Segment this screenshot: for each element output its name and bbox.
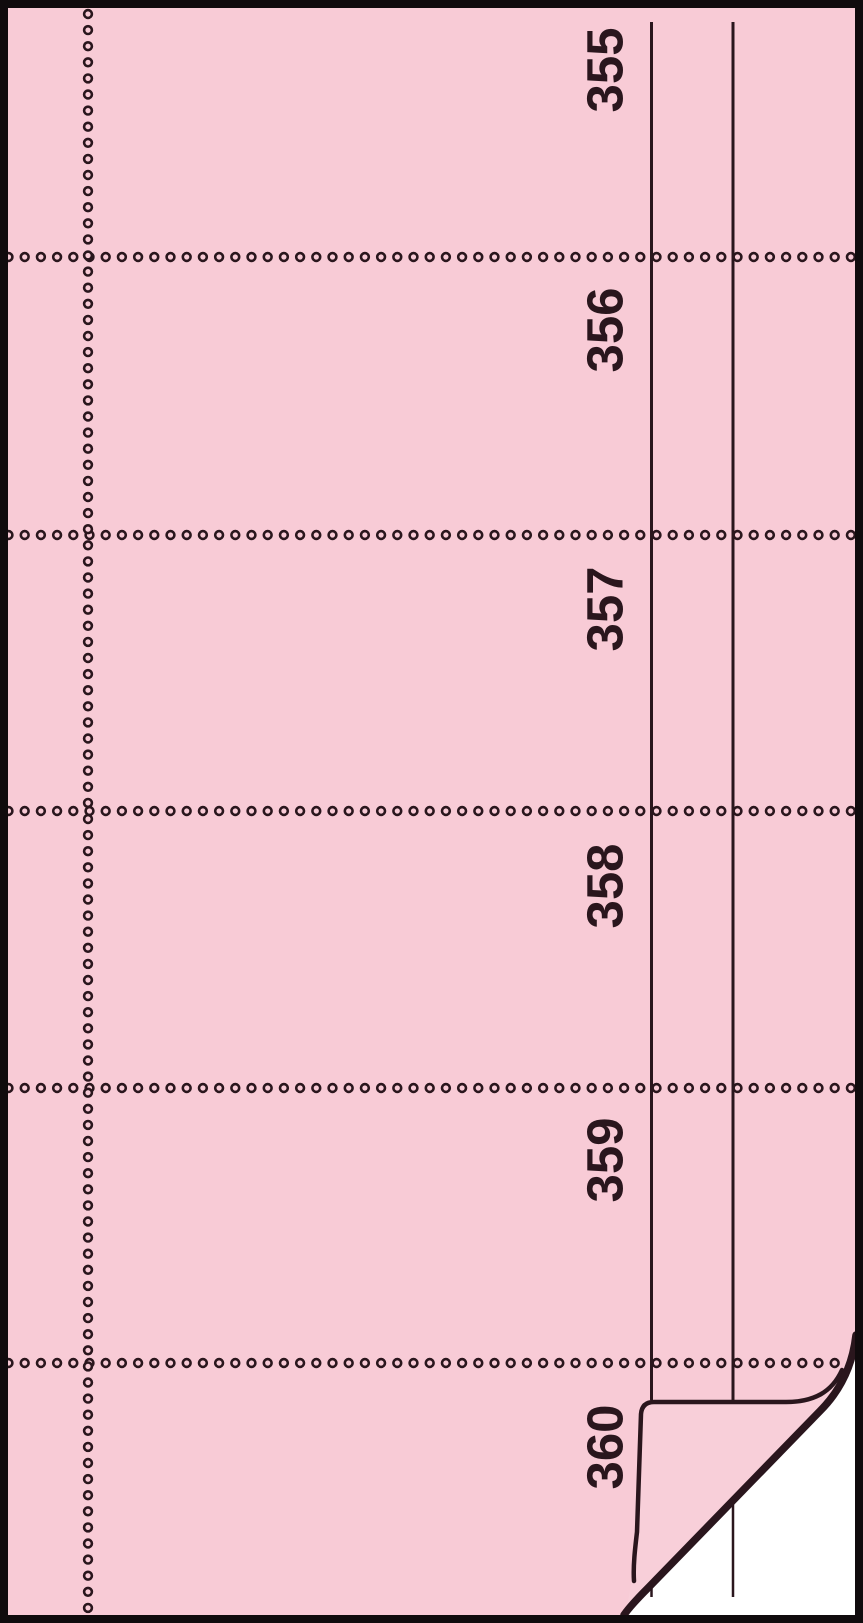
perforation-dot [84,590,92,598]
perforation-dot [264,1359,272,1367]
perforation-dot [588,531,596,539]
perforation-dot [604,531,612,539]
perforation-dot [815,807,823,815]
perforation-dot [84,815,92,823]
perforation-dot [84,1137,92,1145]
perforation-dot [84,670,92,678]
perforation-dot [717,1359,725,1367]
perforation-dot [215,1084,223,1092]
perforation-dot [84,461,92,469]
perforation-dot [84,42,92,50]
perforation-dot [474,807,482,815]
perforation-dot [199,1084,207,1092]
perforation-dot [84,1089,92,1097]
perforation-dot [102,253,110,261]
perforation-dot [84,58,92,66]
perforation-dot [118,1359,126,1367]
serial-number-359: 359 [577,1117,634,1202]
perforation-dot [167,1084,175,1092]
perforation-dot [847,253,855,261]
perforation-dot [248,1084,256,1092]
perforation-dot [84,1427,92,1435]
perforation-dot [426,253,434,261]
perforation-dot [766,531,774,539]
perforation-dot [296,253,304,261]
perforation-dot [750,807,758,815]
perforation-dot [669,253,677,261]
perforation-dot [507,253,515,261]
perforation-dot [102,531,110,539]
perforation-dot [53,253,61,261]
perforation-dot [345,1359,353,1367]
perforation-dot [636,531,644,539]
perforation-dot [636,253,644,261]
perforation-dot [134,1359,142,1367]
perforation-dot [296,531,304,539]
perforation-dot [831,1084,839,1092]
perforation-dot [84,397,92,405]
perforation-dot [620,807,628,815]
perforation-dot [410,531,418,539]
perforation-dot [491,253,499,261]
form-sheet-graphic: 355 356 357 358 359 360 [0,0,863,1623]
perforation-dot [458,253,466,261]
perforation-dot [377,1084,385,1092]
perforation-dot [84,944,92,952]
perforation-dot [118,531,126,539]
perforation-dot [118,253,126,261]
perforation-dot [555,531,563,539]
perforation-dot [86,807,94,815]
perforation-dot [377,253,385,261]
perforation-dot [458,1359,466,1367]
perforation-dot [69,531,77,539]
perforation-dot [410,253,418,261]
perforation-dot [37,1084,45,1092]
perforation-dot [798,1359,806,1367]
perforation-dot [84,1330,92,1338]
perforation-dot [167,807,175,815]
perforation-dot [685,807,693,815]
perforation-dot [734,531,742,539]
perforation-dot [84,1057,92,1065]
perforation-dot [84,26,92,34]
perforation-dot [84,1411,92,1419]
perforation-dot [69,1359,77,1367]
perforation-dot [21,253,29,261]
perforation-dot [84,1202,92,1210]
perforation-dot [183,1359,191,1367]
form-sheet: 355 356 357 358 359 360 [0,0,863,1623]
perforation-dot [734,1359,742,1367]
perforation-dot [150,531,158,539]
perforation-dot [69,807,77,815]
perforation-dot [442,807,450,815]
perforation-dot [84,1008,92,1016]
perforation-dot [474,1359,482,1367]
perforation-dot [102,1359,110,1367]
perforation-dot [84,1073,92,1081]
perforation-dot [847,807,855,815]
perforation-dot [393,1084,401,1092]
perforation-dot [264,1084,272,1092]
perforation-dot [84,75,92,83]
perforation-dot [393,253,401,261]
perforation-dot [507,1359,515,1367]
perforation-dot [21,807,29,815]
perforation-dot [199,531,207,539]
perforation-dot [847,531,855,539]
perforation-dot [84,558,92,566]
perforation-dot [750,531,758,539]
perforation-dot [264,531,272,539]
perforation-dot [653,253,661,261]
perforation-dot [474,531,482,539]
perforation-dot [21,1084,29,1092]
perforation-dot [84,429,92,437]
perforation-dot [361,253,369,261]
perforation-dot [84,171,92,179]
perforation-dot [717,253,725,261]
perforation-dot [458,1084,466,1092]
perforation-dot [685,531,693,539]
perforation-dot [84,236,92,244]
perforation-dot [150,1084,158,1092]
perforation-dot [84,1105,92,1113]
perforation-dot [280,1084,288,1092]
perforation-dot [312,807,320,815]
perforation-dot [84,831,92,839]
perforation-dot [361,1084,369,1092]
perforation-dot [84,735,92,743]
perforation-dot [280,1359,288,1367]
perforation-dot [134,1084,142,1092]
perforation-dot [118,1084,126,1092]
perforation-dot [393,807,401,815]
perforation-dot [523,1359,531,1367]
perforation-dot [523,1084,531,1092]
perforation-dot [669,1084,677,1092]
perforation-dot [84,960,92,968]
perforation-dot [345,253,353,261]
perforation-dot [150,1359,158,1367]
perforation-dot [329,531,337,539]
perforation-dot [84,541,92,549]
perforation-dot [345,531,353,539]
perforation-dot [84,123,92,131]
perforation-dot [183,253,191,261]
perforation-dot [264,253,272,261]
perforation-dot [766,807,774,815]
perforation-dot [669,531,677,539]
perforation-dot [84,203,92,211]
perforation-dot [426,807,434,815]
perforation-dot [815,1359,823,1367]
perforation-dot [183,531,191,539]
perforation-dot [766,1084,774,1092]
perforation-dot [491,531,499,539]
perforation-dot [701,253,709,261]
perforation-dot [523,807,531,815]
perforation-dot [782,1359,790,1367]
perforation-dot [84,268,92,276]
perforation-dot [84,1266,92,1274]
perforation-dot [84,380,92,388]
perforation-dot [215,807,223,815]
perforation-dot [84,847,92,855]
perforation-dot [604,807,612,815]
perforation-dot [37,1359,45,1367]
perforation-dot [782,253,790,261]
perforation-dot [798,1084,806,1092]
perforation-dot [84,1024,92,1032]
perforation-dot [199,807,207,815]
perforation-dot [766,1359,774,1367]
perforation-dot [84,686,92,694]
perforation-dot [734,253,742,261]
perforation-dot [134,807,142,815]
perforation-dot [53,531,61,539]
perforation-dot [588,807,596,815]
perforation-dot [248,1359,256,1367]
perforation-dot [248,253,256,261]
perforation-dot [572,253,580,261]
perforation-dot [280,531,288,539]
perforation-dot [555,253,563,261]
perforation-dot [620,531,628,539]
perforation-dot [798,253,806,261]
perforation-dot [361,531,369,539]
perforation-dot [280,253,288,261]
perforation-dot [37,807,45,815]
perforation-dot [183,807,191,815]
perforation-dot [84,300,92,308]
serial-number-356: 356 [577,287,634,372]
perforation-dot [134,253,142,261]
perforation-dot [84,107,92,115]
perforation-dot [84,1169,92,1177]
perforation-dot [539,1359,547,1367]
perforation-dot [84,1314,92,1322]
perforation-dot [685,253,693,261]
perforation-dot [118,807,126,815]
perforation-dot [84,928,92,936]
perforation-dot [296,1359,304,1367]
perforation-dot [84,702,92,710]
perforation-dot [84,364,92,372]
perforation-dot [84,863,92,871]
perforation-dot [84,1588,92,1596]
perforation-dot [53,1084,61,1092]
perforation-dot [84,155,92,163]
perforation-dot [84,509,92,517]
perforation-dot [426,1359,434,1367]
perforation-dot [588,253,596,261]
perforation-dot [685,1359,693,1367]
perforation-dot [831,253,839,261]
perforation-dot [280,807,288,815]
perforation-dot [183,1084,191,1092]
perforation-dot [410,807,418,815]
perforation-dot [798,531,806,539]
perforation-dot [84,348,92,356]
perforation-dot [458,807,466,815]
perforation-dot [84,1379,92,1387]
perforation-dot [766,253,774,261]
serial-number-360: 360 [577,1404,634,1489]
perforation-dot [653,1359,661,1367]
perforation-dot [734,1084,742,1092]
perforation-dot [84,783,92,791]
perforation-dot [410,1359,418,1367]
perforation-dot [701,531,709,539]
perforation-dot [84,880,92,888]
perforation-dot [84,1041,92,1049]
perforation-dot [329,807,337,815]
perforation-dot [84,1153,92,1161]
perforation-dot [491,1084,499,1092]
perforation-dot [84,574,92,582]
perforation-dot [84,622,92,630]
perforation-dot [84,1346,92,1354]
perforation-dot [588,1359,596,1367]
perforation-dot [84,316,92,324]
perforation-dot [555,1359,563,1367]
perforation-dot [620,1084,628,1092]
perforation-dot [231,807,239,815]
perforation-dot [231,1084,239,1092]
perforation-dot [215,531,223,539]
perforation-dot [653,531,661,539]
perforation-dot [636,1359,644,1367]
perforation-dot [84,1298,92,1306]
perforation-dot [539,807,547,815]
perforation-dot [782,807,790,815]
perforation-dot [572,807,580,815]
perforation-dot [84,1572,92,1580]
perforation-dot [84,654,92,662]
perforation-dot [84,445,92,453]
perforation-dot [84,284,92,292]
perforation-dot [815,253,823,261]
perforation-dot [84,332,92,340]
perforation-dot [84,992,92,1000]
perforation-dot [84,139,92,147]
perforation-dot [798,807,806,815]
perforation-dot [84,1507,92,1515]
perforation-dot [21,1359,29,1367]
perforation-dot [555,1084,563,1092]
perforation-dot [84,1540,92,1548]
perforation-dot [84,896,92,904]
perforation-dot [701,1359,709,1367]
perforation-dot [491,807,499,815]
perforation-dot [620,1359,628,1367]
perforation-dot [84,638,92,646]
perforation-dot [37,531,45,539]
perforation-dot [84,1556,92,1564]
perforation-dot [84,912,92,920]
perforation-dot [264,807,272,815]
perforation-dot [393,531,401,539]
perforation-dot [102,807,110,815]
perforation-dot [199,1359,207,1367]
perforation-dot [782,1084,790,1092]
perforation-dot [248,531,256,539]
perforation-dot [84,1218,92,1226]
perforation-dot [84,1524,92,1532]
perforation-dot [750,253,758,261]
perforation-dot [345,1084,353,1092]
perforation-dot [329,1084,337,1092]
perforation-dot [377,531,385,539]
perforation-dot [84,976,92,984]
perforation-dot [604,1359,612,1367]
perforation-dot [84,1459,92,1467]
perforation-dot [37,253,45,261]
perforation-dot [555,807,563,815]
perforation-dot [523,531,531,539]
perforation-dot [84,1491,92,1499]
perforation-dot [231,531,239,539]
perforation-dot [831,531,839,539]
perforation-dot [426,1084,434,1092]
perforation-dot [231,253,239,261]
perforation-dot [329,1359,337,1367]
perforation-dot [442,1359,450,1367]
perforation-dot [84,1395,92,1403]
perforation-dot [102,1084,110,1092]
perforation-dot [84,187,92,195]
perforation-dot [717,531,725,539]
perforation-dot [84,1121,92,1129]
perforation-dot [701,807,709,815]
perforation-dot [831,807,839,815]
perforation-dot [84,1475,92,1483]
perforation-dot [53,807,61,815]
perforation-dot [474,1084,482,1092]
perforation-dot [539,531,547,539]
perforation-dot [84,493,92,501]
perforation-dot [685,1084,693,1092]
perforation-dot [84,1250,92,1258]
perforation-dot [84,1234,92,1242]
perforation-dot [782,531,790,539]
perforation-dot [539,1084,547,1092]
perforation-dot [717,807,725,815]
perforation-dot [734,807,742,815]
perforation-dot [296,1084,304,1092]
perforation-dot [199,253,207,261]
perforation-dot [84,413,92,421]
perforation-dot [410,1084,418,1092]
perforation-dot [167,531,175,539]
perforation-dot [701,1084,709,1092]
perforation-dot [312,1359,320,1367]
perforation-dot [572,531,580,539]
perforation-dot [231,1359,239,1367]
perforation-dot [815,1084,823,1092]
perforation-dot [84,252,92,260]
perforation-dot [84,1604,92,1612]
perforation-dot [507,807,515,815]
perforation-dot [669,1359,677,1367]
perforation-dot [393,1359,401,1367]
perforation-dot [653,1084,661,1092]
perforation-dot [167,1359,175,1367]
perforation-dot [523,253,531,261]
perforation-dot [150,807,158,815]
